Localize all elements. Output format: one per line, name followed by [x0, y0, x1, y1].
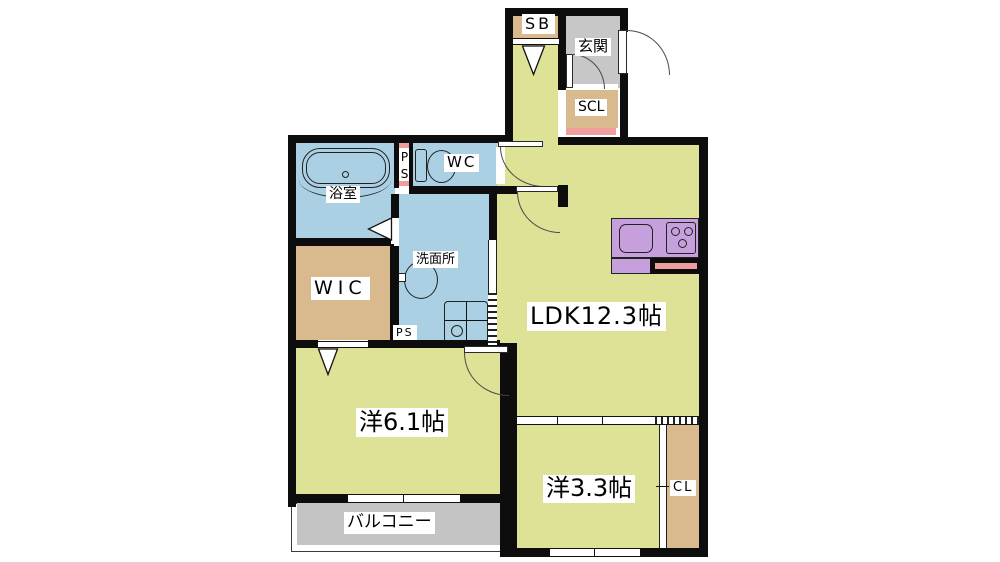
kitchen-sink [619, 224, 653, 253]
room-label-wic: WIC [311, 277, 370, 300]
entrance-door-arc [627, 30, 670, 75]
sliding-partition-pocket [655, 416, 699, 425]
burner-icon [671, 227, 680, 236]
partition-tick [602, 416, 603, 425]
kitchen-counter-end [611, 258, 651, 274]
cl-door-tick [656, 486, 669, 487]
window-tick [403, 494, 404, 503]
room-label-ldk: LDK12.3帖 [527, 302, 666, 331]
wall [391, 194, 399, 218]
room-label-bedroom33: 洋3.3帖 [543, 475, 635, 503]
wall [620, 73, 628, 137]
room-label-cl: CL [670, 480, 696, 496]
door-leaf [464, 346, 508, 353]
wall [288, 135, 513, 143]
window-tick [594, 548, 595, 557]
wall [505, 548, 550, 557]
room-label-bathroom: 浴室 [326, 186, 360, 203]
sliding-partition [517, 416, 657, 425]
sliding-door [488, 240, 497, 293]
burner-icon [678, 239, 687, 248]
folding-door-marker [521, 45, 546, 76]
kitchen-pink-strip [655, 263, 697, 269]
window [348, 494, 460, 503]
room-label-sb: SB [522, 14, 555, 34]
room-label-wc: WC [444, 154, 479, 172]
folding-door-marker [317, 348, 339, 376]
room-label-ps-lower: PS [393, 325, 417, 340]
ldk-floor-south [517, 344, 699, 416]
wall [288, 135, 296, 507]
window [550, 548, 640, 557]
entrance-door-leaf [618, 30, 627, 74]
wall [288, 494, 348, 503]
room-label-scl: SCL [575, 99, 607, 116]
room-label-bedroom61: 洋6.1帖 [356, 408, 448, 437]
wall [489, 194, 497, 240]
wall [640, 548, 708, 557]
burner-icon [684, 227, 693, 236]
room-label-ps-upper: PS [399, 149, 410, 184]
room-label-washroom: 洗面所 [413, 251, 458, 268]
wall [558, 137, 708, 145]
scl-step-strip [566, 128, 616, 135]
wic-door [318, 341, 368, 348]
wall [505, 8, 513, 143]
toilet-icon [415, 149, 427, 182]
ps-upper-mark-top [399, 143, 409, 148]
room-label-genkan: 玄関 [575, 38, 611, 56]
floor-plan: SB 玄関 SCL 浴室 PS WC 洗面所 WIC PS LDK12.3帖 洋… [0, 0, 1000, 562]
wall [409, 186, 517, 194]
wall [699, 137, 708, 557]
wall [460, 494, 512, 503]
bathtub-drain [342, 171, 349, 178]
stove-icon [666, 222, 696, 254]
partition-tick [557, 416, 558, 425]
washing-machine-line [466, 301, 467, 343]
wall [288, 340, 318, 348]
washing-machine-door [451, 325, 463, 337]
wall [558, 8, 566, 90]
room-label-balcony: バルコニー [344, 512, 435, 534]
shoe-box-door [513, 38, 559, 45]
folding-door-marker [367, 217, 393, 241]
sliding-door-pocket [488, 293, 497, 345]
